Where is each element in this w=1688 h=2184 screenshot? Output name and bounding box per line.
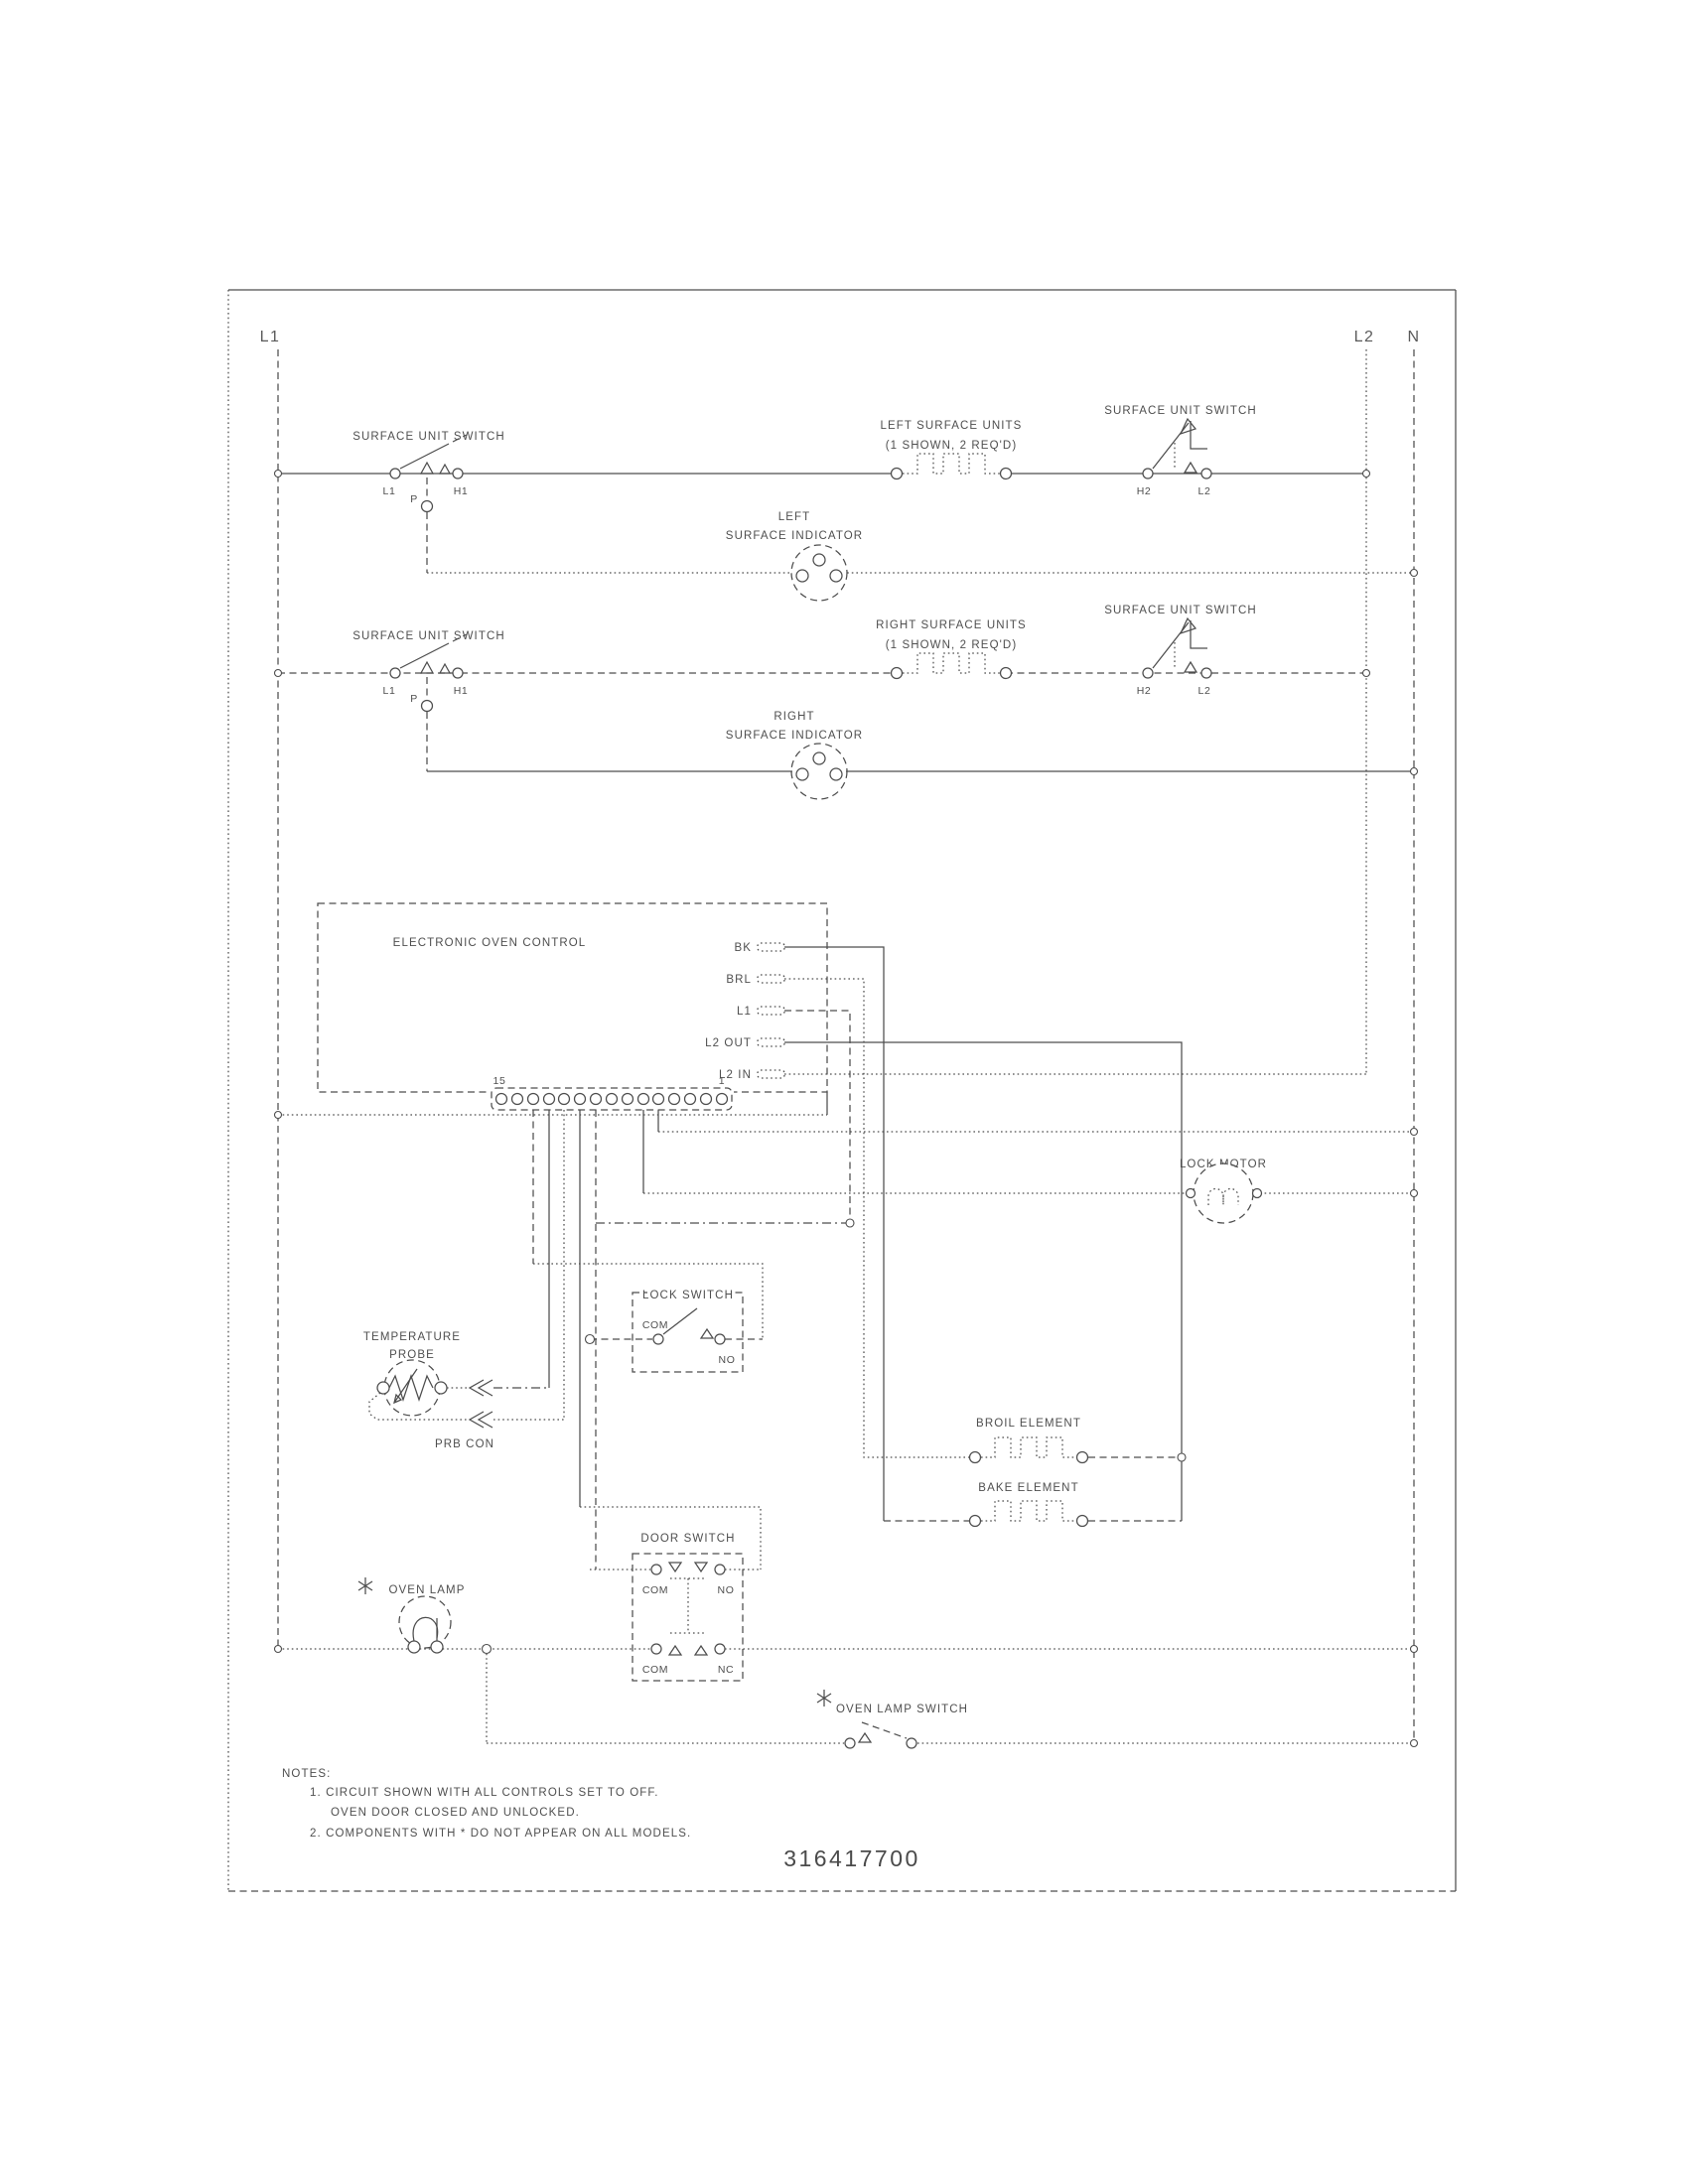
terminal-p (422, 501, 433, 512)
no-label: NO (719, 1354, 736, 1366)
contact-arrow-icon (695, 1646, 707, 1655)
oven-lamp-switch-label: OVEN LAMP SWITCH (836, 1704, 968, 1715)
terminal-nc (715, 1644, 725, 1654)
contact-arrow-icon (421, 662, 433, 673)
terminal-label-l1: L1 (383, 485, 396, 497)
pin-1-label: 1 (719, 1075, 725, 1087)
probe-title: TEMPERATURE (363, 1331, 461, 1343)
broil-element: BROIL ELEMENT (970, 1418, 1183, 1463)
svg-text:H1: H1 (454, 685, 469, 697)
contact-arrow-icon (1185, 662, 1196, 672)
right-surface-indicator: RIGHT SURFACE INDICATOR (427, 711, 1414, 799)
surface-unit-switch-label: SURFACE UNIT SWITCH (352, 630, 505, 642)
spade-connector-icon (758, 1038, 784, 1046)
left-surface-units-sub: (1 SHOWN, 2 REQ'D) (886, 440, 1018, 452)
spade-connector-icon (758, 1070, 784, 1078)
svg-text:NO: NO (718, 1584, 735, 1596)
note-2: 2. COMPONENTS WITH * DO NOT APPEAR ON AL… (310, 1828, 691, 1840)
pin-15-label: 15 (493, 1075, 506, 1087)
broil-label: BROIL ELEMENT (976, 1418, 1081, 1430)
indicator-title: RIGHT (774, 711, 814, 723)
svg-text:L1: L1 (383, 685, 396, 697)
right-surface-units-sub: (1 SHOWN, 2 REQ'D) (886, 639, 1018, 651)
terminal-label-h1: H1 (454, 485, 469, 497)
note-1b: OVEN DOOR CLOSED AND UNLOCKED. (331, 1807, 580, 1819)
wire-label-l2out: L2 OUT (705, 1037, 752, 1049)
contact-arrow-icon (669, 1563, 681, 1571)
chevron-connector-icon (470, 1380, 484, 1396)
contact-arrow-icon (440, 465, 450, 474)
terminal-com (653, 1334, 663, 1344)
right-surface-units-label: RIGHT SURFACE UNITS (876, 619, 1027, 631)
terminal-h2 (1143, 668, 1153, 678)
svg-text:H2: H2 (1137, 685, 1152, 697)
terminal-h1 (453, 668, 463, 678)
terminal-label-l2: L2 (1198, 485, 1211, 497)
terminal-h2 (1143, 469, 1153, 478)
terminal-h1 (453, 469, 463, 478)
terminal-l1 (390, 668, 400, 678)
svg-text:NC: NC (718, 1664, 734, 1676)
heating-element-icon (981, 1501, 1076, 1521)
indicator-title: LEFT (778, 511, 811, 523)
l1-bus-label: L1 (260, 329, 281, 345)
lock-switch-label: LOCK SWITCH (642, 1290, 734, 1301)
junction-dots (275, 471, 1418, 1747)
asterisk-icon (817, 1690, 831, 1706)
wire-label-l1: L1 (737, 1006, 752, 1018)
heating-element-icon (981, 1437, 1076, 1457)
svg-text:L2: L2 (1198, 685, 1211, 697)
wire-label-bk: BK (734, 942, 752, 954)
schematic-page: L1 L2 N SURFACE UNIT SWITCH L1 P H1 LEFT… (0, 0, 1688, 2184)
wire-label-brl: BRL (726, 974, 752, 986)
surface-unit-switch-label: SURFACE UNIT SWITCH (1104, 405, 1257, 417)
eoc-title: ELECTRONIC OVEN CONTROL (393, 937, 587, 949)
heating-element-icon (903, 454, 1000, 474)
n-bus: N (1407, 329, 1420, 1743)
com-label: COM (642, 1319, 668, 1331)
wiring-diagram: L1 L2 N SURFACE UNIT SWITCH L1 P H1 LEFT… (0, 0, 1688, 2184)
terminal-l1 (390, 469, 400, 478)
svg-text:P: P (410, 693, 418, 705)
chevron-connector-icon (470, 1412, 484, 1428)
left-surface-units-label: LEFT SURFACE UNITS (881, 420, 1023, 432)
chevron-connector-icon (479, 1412, 492, 1428)
bake-label: BAKE ELEMENT (978, 1482, 1078, 1494)
contact-arrow-icon (1185, 463, 1196, 473)
terminal-no (715, 1334, 725, 1344)
l2-bus: L2 (1354, 329, 1375, 1074)
svg-text:COM: COM (642, 1584, 668, 1596)
terminal-no (715, 1565, 725, 1574)
contact-arrow-icon (421, 463, 433, 474)
arrowhead-icon (1181, 618, 1196, 633)
part-number: 316417700 (783, 1845, 920, 1871)
terminal-label-p: P (410, 493, 418, 505)
indicator-subtitle: SURFACE INDICATOR (726, 530, 863, 542)
asterisk-icon (358, 1577, 372, 1594)
lock-switch: LOCK SWITCH COM NO (590, 1287, 763, 1372)
electronic-oven-control: ELECTRONIC OVEN CONTROL BK BRL L1 L2 OUT… (318, 903, 827, 1112)
terminal-label-h2: H2 (1137, 485, 1152, 497)
svg-text:COM: COM (642, 1664, 668, 1676)
terminal-p (422, 701, 433, 712)
arrowhead-icon (1181, 419, 1196, 434)
contact-arrow-icon (695, 1563, 707, 1571)
terminal-l2 (1201, 668, 1211, 678)
chevron-connector-icon (479, 1380, 492, 1396)
door-switch: DOOR SWITCH COM NO COM NC (590, 1533, 761, 1681)
note-1a: 1. CIRCUIT SHOWN WITH ALL CONTROLS SET T… (310, 1787, 659, 1799)
contact-arrow-icon (669, 1646, 681, 1655)
oven-lamp-circuit: OVEN LAMP OVEN LAMP SWITCH (278, 1577, 1414, 1748)
surface-unit-switch-label: SURFACE UNIT SWITCH (1104, 605, 1257, 616)
indicator-subtitle: SURFACE INDICATOR (726, 730, 863, 742)
notes-heading: NOTES: (282, 1768, 331, 1780)
lock-motor: LOCK MOTOR (1180, 1159, 1267, 1223)
terminal-l2 (1201, 469, 1211, 478)
terminal-com (651, 1565, 661, 1574)
oven-lamp-label: OVEN LAMP (388, 1584, 465, 1596)
contact-arrow-icon (440, 664, 450, 673)
eoc-wiring (278, 947, 1414, 1570)
terminal-com (651, 1644, 661, 1654)
contact-arrow-icon (701, 1329, 713, 1338)
n-bus-label: N (1407, 329, 1420, 345)
contact-arrow-icon (859, 1733, 871, 1742)
heating-element-icon (903, 653, 1000, 673)
surface-unit-switch-label: SURFACE UNIT SWITCH (352, 431, 505, 443)
l1-bus: L1 (260, 329, 281, 1649)
door-switch-label: DOOR SWITCH (640, 1533, 735, 1545)
prb-con-label: PRB CON (435, 1438, 494, 1450)
left-surface-indicator: LEFT SURFACE INDICATOR (427, 511, 1414, 601)
oven-lamp-switch: OVEN LAMP SWITCH (817, 1690, 968, 1748)
bake-element: BAKE ELEMENT (970, 1482, 1183, 1527)
probe-subtitle: PROBE (389, 1349, 435, 1361)
spade-connector-icon (758, 943, 784, 951)
notes-block: NOTES: 1. CIRCUIT SHOWN WITH ALL CONTROL… (282, 1768, 691, 1840)
spade-connector-icon (758, 1007, 784, 1015)
temperature-probe: TEMPERATURE PROBE PRB CON (363, 1331, 564, 1450)
l2-bus-label: L2 (1354, 329, 1375, 345)
spade-connector-icon (758, 975, 784, 983)
